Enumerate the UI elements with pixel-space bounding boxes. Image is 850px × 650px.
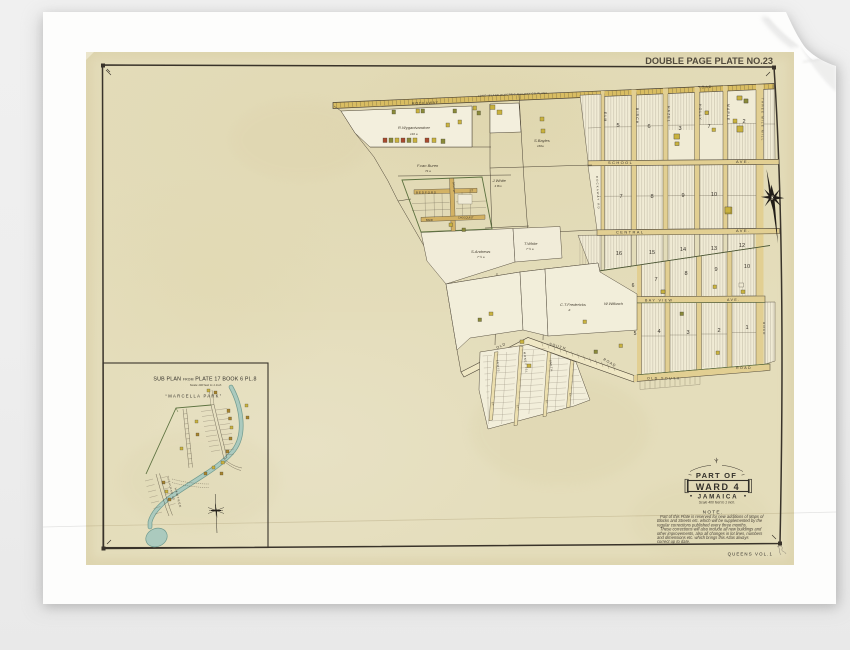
svg-text:HOLLY: HOLLY xyxy=(698,104,702,121)
svg-text:WARD 4: WARD 4 xyxy=(696,482,741,492)
svg-text:AVE.: AVE. xyxy=(727,298,741,302)
svg-text:ELM: ELM xyxy=(603,112,607,123)
svg-text:R.Wygantvandner: R.Wygantvandner xyxy=(398,125,431,130)
svg-text:ST: ST xyxy=(491,402,494,407)
svg-text:HAZEL: HAZEL xyxy=(667,106,671,123)
svg-text:Jr.: Jr. xyxy=(568,308,572,312)
svg-text:140 a: 140 a xyxy=(410,132,418,136)
svg-text:10: 10 xyxy=(711,192,717,198)
svg-text:BANK: BANK xyxy=(426,218,433,222)
svg-text:QUEENS VOL.1: QUEENS VOL.1 xyxy=(728,552,773,557)
svg-text:T.White: T.White xyxy=(524,241,538,246)
svg-text:3: 3 xyxy=(678,126,681,132)
svg-text:BAY VIEW: BAY VIEW xyxy=(645,298,673,302)
svg-text:7: 7 xyxy=(707,124,710,130)
svg-text:6: 6 xyxy=(632,283,635,289)
svg-text:16: 16 xyxy=(616,251,622,257)
svg-text:160a: 160a xyxy=(537,144,544,148)
svg-text:ST: ST xyxy=(545,400,548,405)
svg-text:Scale 100 feet to 1 inch.: Scale 100 feet to 1 inch. xyxy=(190,383,222,387)
svg-text:4 Bro: 4 Bro xyxy=(495,184,503,188)
svg-text:6: 6 xyxy=(647,124,650,130)
svg-text:BANK ST: BANK ST xyxy=(452,182,455,193)
svg-text:8: 8 xyxy=(684,271,687,277)
svg-text:C.T.Fredericks: C.T.Fredericks xyxy=(560,302,586,307)
svg-text:7 ½ a: 7 ½ a xyxy=(477,255,485,259)
svg-text:ROAD: ROAD xyxy=(762,322,766,335)
svg-text:S.Bayles: S.Bayles xyxy=(534,138,550,143)
svg-text:3: 3 xyxy=(686,330,689,336)
svg-text:1: 1 xyxy=(745,325,748,331)
svg-text:correct up to date.: correct up to date. xyxy=(657,539,690,544)
svg-text:F.van Buren: F.van Buren xyxy=(417,163,439,168)
svg-text:74 a: 74 a xyxy=(425,169,431,173)
svg-text:AVE.: AVE. xyxy=(736,228,750,233)
svg-text:W.Wilbach: W.Wilbach xyxy=(604,301,624,306)
svg-text:9: 9 xyxy=(681,193,684,199)
svg-text:Scale 400 feet to 1 inch.: Scale 400 feet to 1 inch. xyxy=(699,500,735,504)
svg-text:8: 8 xyxy=(650,194,653,200)
svg-text:12: 12 xyxy=(739,243,745,249)
svg-text:7: 7 xyxy=(654,277,657,283)
svg-text:DOUBLE PAGE PLATE NO.23: DOUBLE PAGE PLATE NO.23 xyxy=(645,56,773,66)
svg-text:“MARCELLA PARK”: “MARCELLA PARK” xyxy=(166,394,223,399)
svg-text:CENTRAL: CENTRAL xyxy=(616,229,644,234)
svg-text:ST: ST xyxy=(568,393,571,398)
svg-text:AVE.: AVE. xyxy=(736,159,750,164)
svg-text:ROAD: ROAD xyxy=(698,85,713,90)
svg-text:2: 2 xyxy=(717,328,720,334)
svg-text:15: 15 xyxy=(649,250,655,256)
svg-text:5: 5 xyxy=(616,123,619,129)
svg-text:BIRCH: BIRCH xyxy=(635,108,639,125)
svg-text:7: 7 xyxy=(619,194,622,200)
svg-text:CHOCQUIST: CHOCQUIST xyxy=(458,216,474,220)
svg-text:THREE MILE MILL: THREE MILE MILL xyxy=(761,98,765,142)
svg-text:SCHOOL: SCHOOL xyxy=(608,160,633,165)
svg-text:7 ½ a: 7 ½ a xyxy=(526,247,534,251)
svg-text:13: 13 xyxy=(711,246,717,252)
svg-text:JAMAICA: JAMAICA xyxy=(698,493,739,500)
svg-text:S.Andrews: S.Andrews xyxy=(471,249,490,254)
svg-text:4: 4 xyxy=(657,329,660,335)
svg-text:J.White: J.White xyxy=(492,178,507,183)
svg-text:14: 14 xyxy=(680,247,686,253)
svg-text:MAPLE: MAPLE xyxy=(726,104,730,122)
svg-text:BEDFORD: BEDFORD xyxy=(416,190,437,194)
svg-text:ST: ST xyxy=(516,405,519,410)
svg-text:10: 10 xyxy=(744,264,750,270)
svg-text:2: 2 xyxy=(742,119,745,125)
svg-text:SUB PLAN FROM PLATE 17 BOOK 6: SUB PLAN FROM PLATE 17 BOOK 6 PL.8 xyxy=(153,377,256,383)
svg-text:PART OF: PART OF xyxy=(696,471,737,480)
svg-text:5: 5 xyxy=(634,331,637,337)
svg-text:9: 9 xyxy=(714,267,717,273)
svg-text:ROAD: ROAD xyxy=(736,366,752,370)
svg-text:OLD SOUTH: OLD SOUTH xyxy=(647,376,681,380)
svg-text:ST: ST xyxy=(470,189,474,193)
